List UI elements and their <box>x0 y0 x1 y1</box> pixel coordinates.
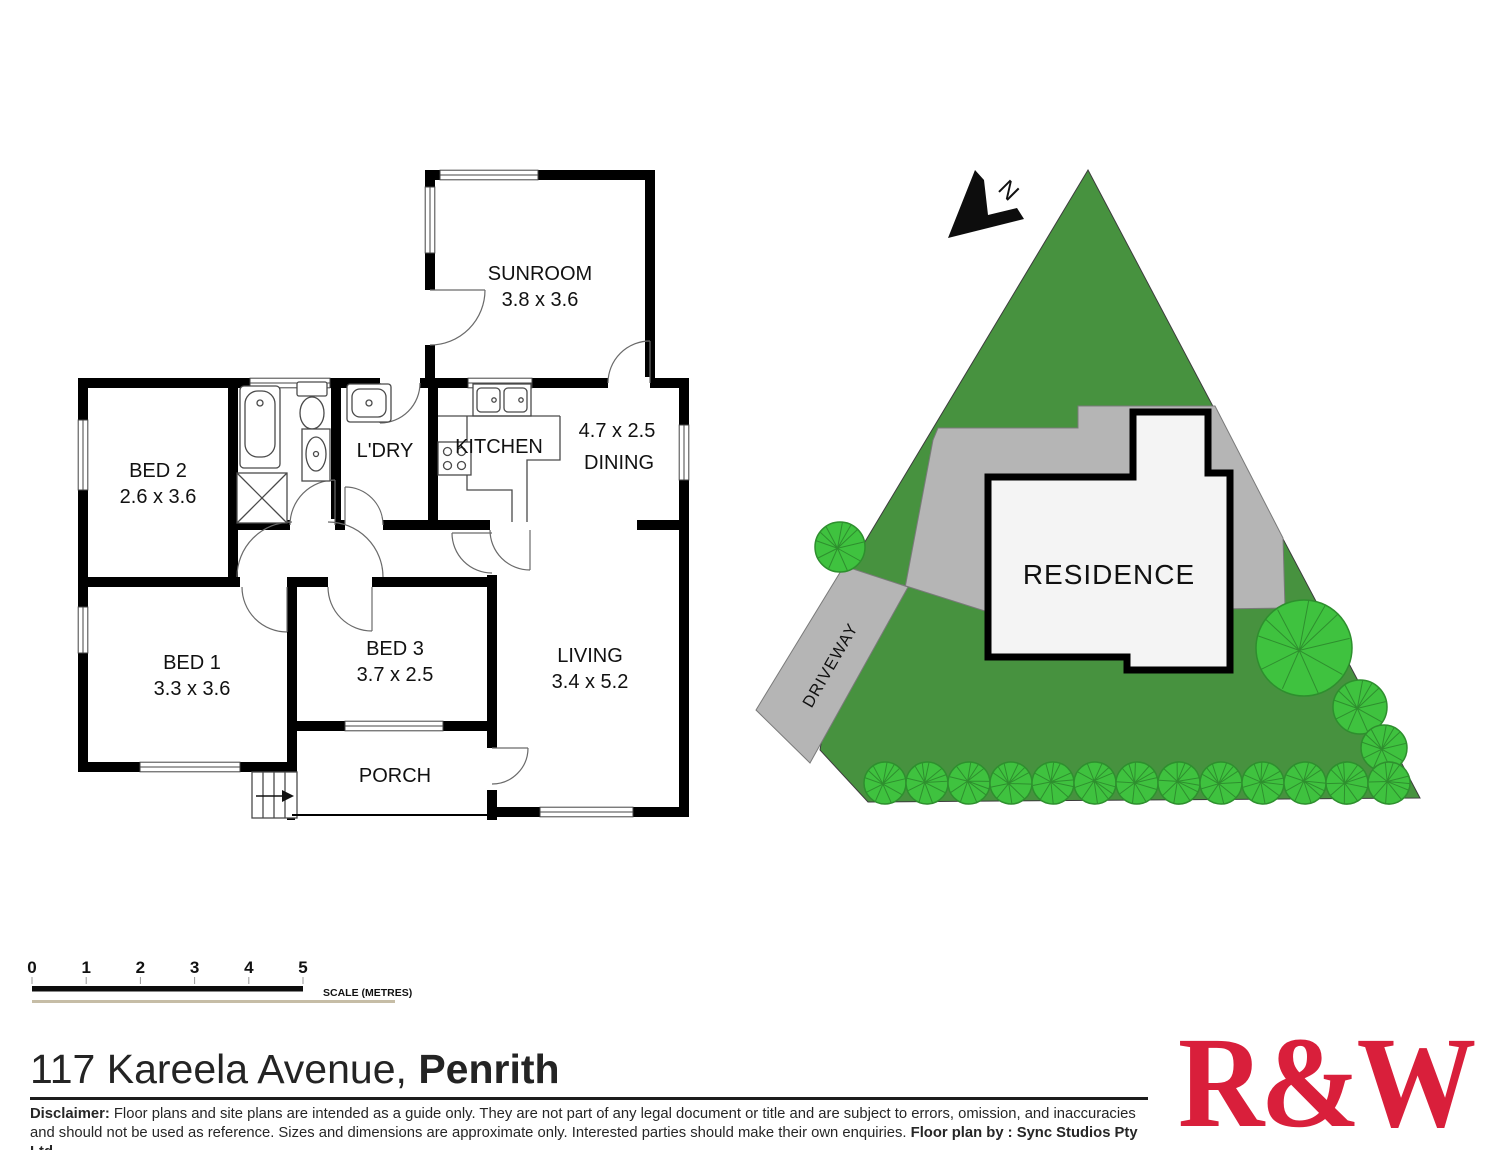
vanity-icon <box>302 429 330 481</box>
label-bed3: BED 3 <box>366 638 424 660</box>
entry-steps <box>252 772 297 818</box>
scale-tick-label: 5 <box>298 958 307 977</box>
label-dining: DINING <box>584 452 654 474</box>
floor-plan: SUNROOM 3.8 x 3.6 BED 2 2.6 x 3.6 L'DRY … <box>70 160 710 830</box>
door-openings <box>240 290 650 821</box>
kitchen-sink-icon <box>473 384 531 416</box>
label-sunroom: SUNROOM <box>488 263 592 285</box>
north-arrow-icon: N <box>948 170 1024 238</box>
laundry-tub-icon <box>347 384 391 422</box>
label-porch: PORCH <box>359 765 431 787</box>
tree-icon <box>1256 600 1352 696</box>
scale-caption: SCALE (METRES) <box>323 987 412 999</box>
dims-living: 3.4 x 5.2 <box>552 671 629 693</box>
scale-tick-label: 3 <box>190 958 199 977</box>
scale-tick-label: 4 <box>244 958 254 977</box>
door-swings <box>237 290 650 784</box>
room-bed2 <box>83 383 233 582</box>
north-label: N <box>993 175 1024 206</box>
label-bed1: BED 1 <box>163 652 221 674</box>
disclaimer: Disclaimer: Floor plans and site plans a… <box>30 1105 1152 1150</box>
scale-bar: 0 1 2 3 4 5 SCALE (METRES) <box>20 950 450 1012</box>
dims-bed2: 2.6 x 3.6 <box>120 486 197 508</box>
dims-sunroom: 3.8 x 3.6 <box>502 289 579 311</box>
divider-rule <box>30 1097 1148 1100</box>
address-suburb: Penrith <box>418 1046 559 1092</box>
dims-bed3: 3.7 x 2.5 <box>357 664 434 686</box>
toilet-icon <box>297 382 327 429</box>
label-living: LIVING <box>557 645 623 667</box>
address-street: 117 Kareela Avenue, <box>30 1046 418 1092</box>
label-kitchen: KITCHEN <box>455 436 543 458</box>
tree-icon <box>815 522 865 572</box>
label-bed2: BED 2 <box>129 460 187 482</box>
floorplan-sheet: SUNROOM 3.8 x 3.6 BED 2 2.6 x 3.6 L'DRY … <box>0 0 1496 1150</box>
agency-logo: R&W <box>1178 1018 1454 1148</box>
scale-tick-label: 1 <box>81 958 90 977</box>
disclaimer-label: Disclaimer: <box>30 1106 110 1122</box>
bathtub-icon <box>240 386 280 468</box>
site-plan: DRIVEWAY RESIDENCE N <box>740 160 1440 820</box>
property-address: 117 Kareela Avenue, Penrith <box>30 1046 560 1093</box>
scale-bar-shadow <box>32 1000 395 1003</box>
scale-tick-label: 2 <box>136 958 145 977</box>
room-bed1 <box>83 582 292 767</box>
dims-bed1: 3.3 x 3.6 <box>154 678 231 700</box>
dims-dining: 4.7 x 2.5 <box>579 420 656 442</box>
scale-tick-label: 0 <box>27 958 36 977</box>
shrub-icon <box>864 762 906 804</box>
scale-bar-rule <box>32 986 303 992</box>
label-laundry: L'DRY <box>357 440 414 462</box>
residence-label: RESIDENCE <box>1023 559 1195 590</box>
shower-icon <box>237 473 287 523</box>
